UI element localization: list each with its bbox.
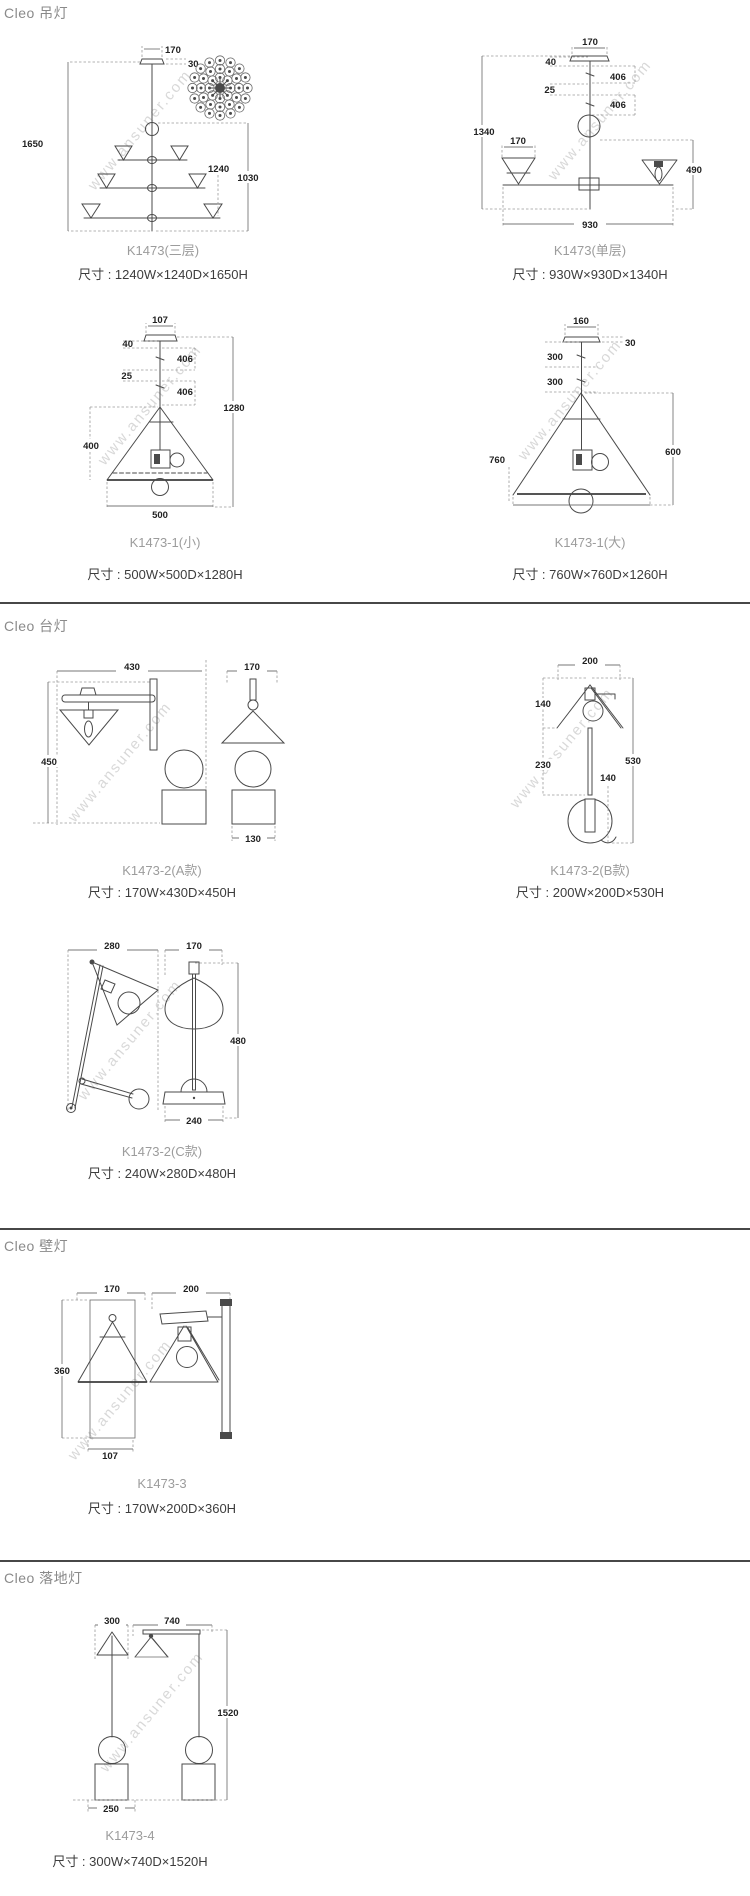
- dim-label: 40: [545, 57, 556, 68]
- caption-model: K1473-3: [52, 1476, 272, 1491]
- caption-size: 尺寸 : 930W×930D×1340H: [480, 264, 700, 283]
- dim-label: 406: [177, 387, 193, 398]
- caption-size: 尺寸 : 200W×200D×530H: [480, 882, 700, 901]
- dim-label: 600: [665, 447, 681, 458]
- dim-label: 530: [625, 756, 641, 767]
- dim-label: 107: [152, 315, 168, 326]
- drawing-k1473-2c: 280 170 480 240: [35, 935, 255, 1135]
- dim-label: 280: [104, 941, 120, 952]
- dim-label: 30: [625, 338, 636, 349]
- dim-label: 1240: [208, 164, 229, 175]
- dim-label: 300: [104, 1616, 120, 1627]
- section-divider: [0, 602, 750, 604]
- dim-label: 30: [188, 59, 199, 70]
- dim-label: 760: [489, 455, 505, 466]
- top-view-flower: [188, 56, 252, 120]
- dim-label: 170: [510, 136, 526, 147]
- dim-label: 200: [183, 1284, 199, 1295]
- dim-label: 406: [610, 100, 626, 111]
- drawing-k1473-1-large: 160 30 300 300 760 600: [395, 315, 695, 520]
- drawing-k1473-2b: 200 140 230 530 140: [495, 650, 675, 860]
- dim-label: 25: [121, 371, 132, 382]
- caption-model: K1473-1(小): [55, 532, 275, 551]
- section-header-wall: Cleo 壁灯: [4, 1236, 68, 1256]
- caption-model: K1473-2(C款): [52, 1141, 272, 1160]
- dim-label: 500: [152, 510, 168, 521]
- dim-label: 170: [582, 37, 598, 48]
- dim-label: 200: [582, 656, 598, 667]
- dim-label: 1280: [223, 403, 244, 414]
- caption-size: 尺寸 : 240W×280D×480H: [52, 1163, 272, 1182]
- dim-label: 480: [230, 1036, 246, 1047]
- caption-size: 尺寸 : 500W×500D×1280H: [55, 564, 275, 583]
- dim-label: 1340: [473, 127, 494, 138]
- dim-label: 406: [610, 72, 626, 83]
- caption-model: K1473(单层): [480, 240, 700, 259]
- dim-label: 170: [244, 662, 260, 673]
- dim-label: 406: [177, 354, 193, 365]
- dim-label: 490: [686, 165, 702, 176]
- caption-size: 尺寸 : 170W×430D×450H: [52, 882, 272, 901]
- dim-label: 930: [582, 220, 598, 231]
- drawing-k1473-3: 170 200 360 107: [40, 1280, 270, 1470]
- drawing-k1473-3tier: 170 30 1650 1240 1030: [10, 35, 280, 245]
- caption-size: 尺寸 : 170W×200D×360H: [52, 1498, 272, 1517]
- drawing-k1473-4: 300 740 1520 250: [55, 1610, 255, 1840]
- caption-model: K1473-2(A款): [52, 860, 272, 879]
- caption-size: 尺寸 : 1240W×1240D×1650H: [53, 264, 273, 283]
- section-divider: [0, 1560, 750, 1562]
- dim-label: 300: [547, 352, 563, 363]
- dim-label: 25: [544, 85, 555, 96]
- dim-label: 170: [165, 45, 181, 56]
- caption-model: K1473-2(B款): [480, 860, 700, 879]
- dim-label: 40: [122, 339, 133, 350]
- dim-label: 740: [164, 1616, 180, 1627]
- caption-size: 尺寸 : 760W×760D×1260H: [480, 564, 700, 583]
- caption-model: K1473-4: [20, 1828, 240, 1843]
- section-header-table: Cleo 台灯: [4, 616, 68, 636]
- dim-label: 1650: [22, 139, 43, 150]
- section-header-pendant: Cleo 吊灯: [4, 3, 68, 23]
- caption-size: 尺寸 : 300W×740D×1520H: [20, 1851, 240, 1870]
- dim-label: 400: [83, 441, 99, 452]
- dim-label: 300: [547, 377, 563, 388]
- dim-label: 250: [103, 1804, 119, 1815]
- dim-label: 1520: [217, 1708, 238, 1719]
- drawing-k1473-1-small: 107 40 406 25 406 1280 400 500: [55, 315, 275, 520]
- dim-label: 107: [102, 1451, 118, 1462]
- drawing-k1473-1tier: 170 40 406 25 406 1340 170 490: [430, 35, 720, 245]
- dim-label: 1030: [237, 173, 258, 184]
- drawing-k1473-2a: 430 450 170 130: [30, 655, 290, 855]
- dim-label: 360: [54, 1366, 70, 1377]
- section-divider: [0, 1228, 750, 1230]
- spec-sheet-page: Cleo 吊灯 Cleo 台灯 Cleo 壁灯 Cleo 落地灯 www.ans…: [0, 0, 750, 1896]
- dim-label: 140: [600, 773, 616, 784]
- dim-label: 240: [186, 1116, 202, 1127]
- dim-label: 430: [124, 662, 140, 673]
- dim-label: 170: [104, 1284, 120, 1295]
- dim-label: 140: [535, 699, 551, 710]
- dim-label: 450: [41, 757, 57, 768]
- dim-label: 160: [573, 316, 589, 327]
- dim-label: 130: [245, 834, 261, 845]
- section-header-floor: Cleo 落地灯: [4, 1568, 83, 1588]
- dim-label: 170: [186, 941, 202, 952]
- dim-label: 230: [535, 760, 551, 771]
- caption-model: K1473(三层): [53, 240, 273, 259]
- caption-model: K1473-1(大): [480, 532, 700, 551]
